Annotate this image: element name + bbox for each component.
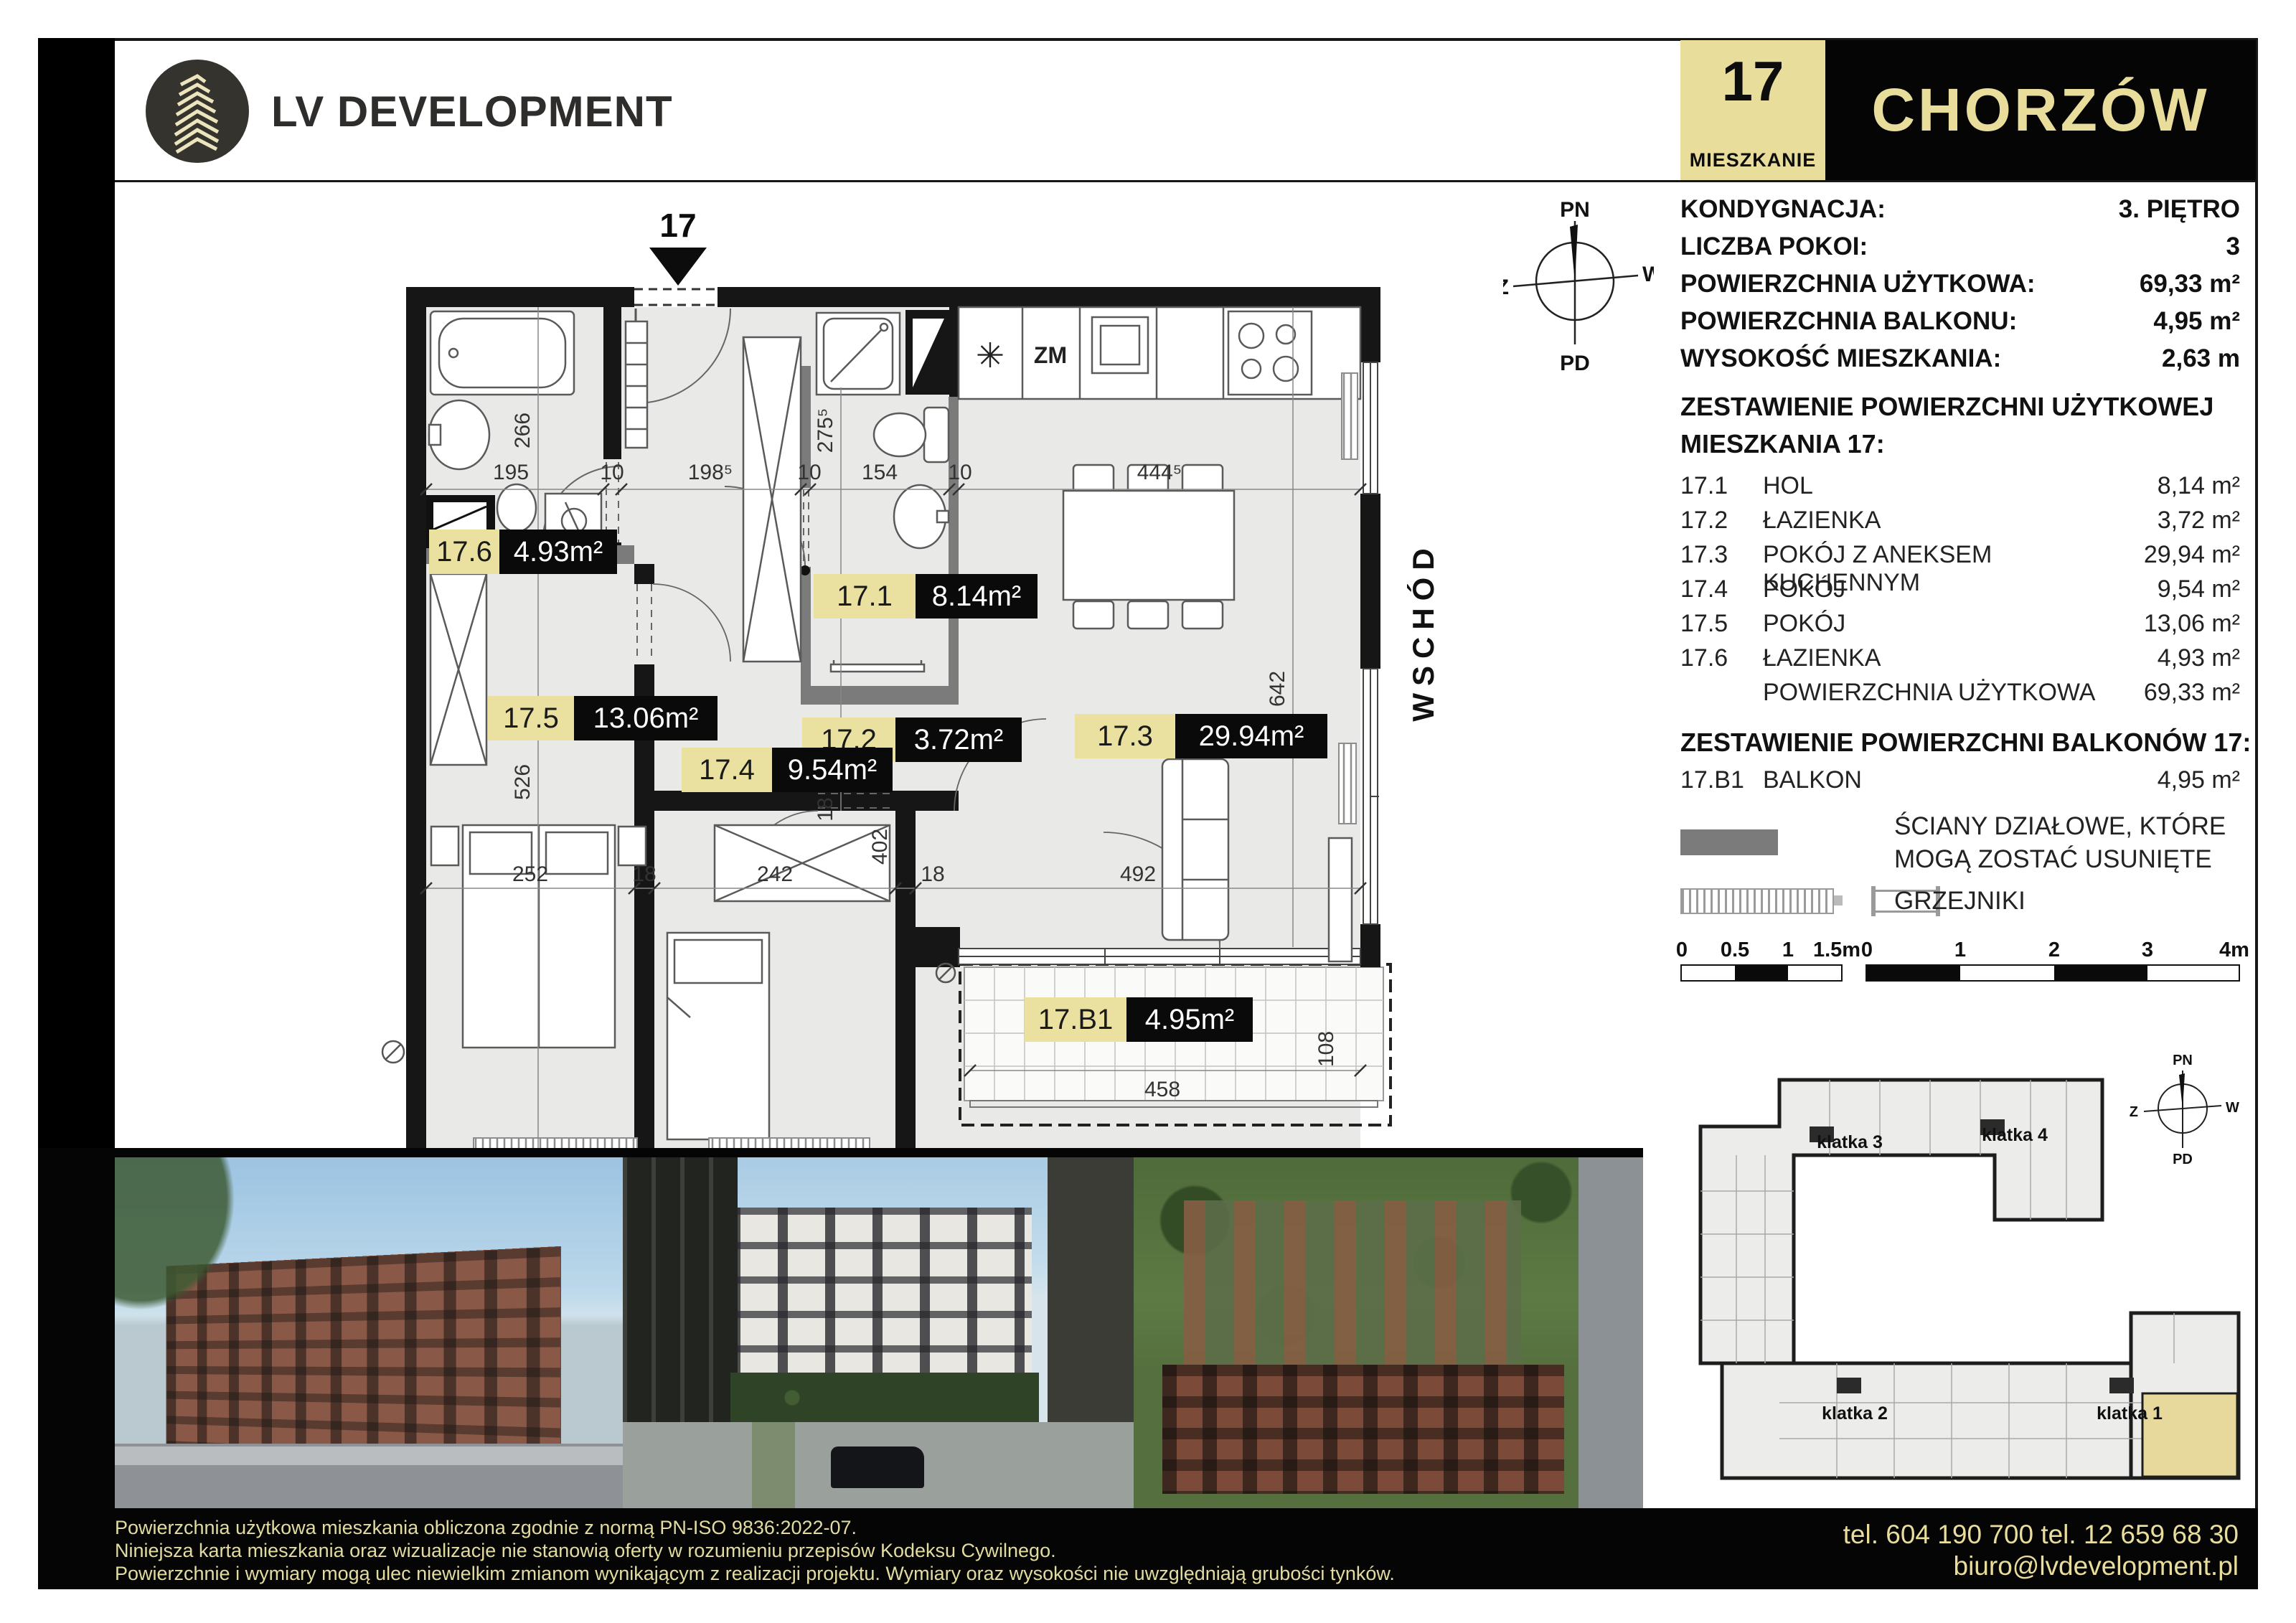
single-bed-icon bbox=[667, 933, 769, 1139]
svg-text:17.6: 17.6 bbox=[436, 536, 492, 568]
row-name: POKÓJ Z ANEKSEM KUCHENNYM bbox=[1763, 541, 2144, 573]
disclaimer-line-2: Niniejsza karta mieszkania oraz wizualiz… bbox=[115, 1540, 1478, 1562]
svg-text:195: 195 bbox=[493, 461, 529, 484]
row-id: 17.4 bbox=[1680, 575, 1763, 607]
row-value: 4,95 m² bbox=[2158, 766, 2240, 798]
row-value: 4,93 m² bbox=[2158, 644, 2240, 676]
scale-bar-small: 0 0.5 1 1.5m bbox=[1680, 964, 1843, 982]
contact-email: biuro@lvdevelopment.pl bbox=[1593, 1551, 2239, 1581]
areas-heading-1: ZESTAWIENIE POWIERZCHNI UŻYTKOWEJ bbox=[1680, 392, 2254, 422]
row-name: ŁAZIENKA bbox=[1763, 644, 2158, 676]
svg-text:17.3: 17.3 bbox=[1097, 720, 1153, 752]
city-box: CHORZÓW bbox=[1825, 40, 2256, 180]
scale-tick: 1.5m bbox=[1813, 938, 1860, 962]
svg-text:266: 266 bbox=[511, 413, 535, 448]
unit-caption: MIESZKANIE bbox=[1690, 149, 1817, 171]
svg-text:PD: PD bbox=[2173, 1152, 2193, 1167]
row-value: 3,72 m² bbox=[2158, 507, 2240, 538]
legend-radiators: GRZEJNIKI bbox=[1894, 887, 2253, 916]
table-row: 17.4 POKÓJ 9,54 m² bbox=[1680, 575, 2240, 607]
svg-text:458: 458 bbox=[1144, 1078, 1180, 1101]
svg-text:18: 18 bbox=[814, 797, 837, 821]
table-row-balcony: 17.B1 BALKON 4,95 m² bbox=[1680, 766, 2240, 798]
row-name: POWIERZCHNIA UŻYTKOWA bbox=[1763, 679, 2144, 710]
room-label-17-5: 17.5 13.06m² bbox=[488, 696, 717, 740]
photo-courtyard-view bbox=[623, 1157, 1134, 1508]
compass-south: PD bbox=[1560, 352, 1590, 375]
svg-text:444⁵: 444⁵ bbox=[1137, 461, 1182, 484]
brand: LV DEVELOPMENT bbox=[143, 50, 789, 172]
dishwasher-label: ZM bbox=[1034, 342, 1067, 368]
east-label: WSCHÓD bbox=[1406, 541, 1440, 721]
row-id: 17.5 bbox=[1680, 610, 1763, 641]
svg-text:18: 18 bbox=[632, 862, 656, 886]
info-row-floor: KONDYGNACJA: 3. PIĘTRO bbox=[1680, 195, 2240, 228]
table-row: 17.5 POKÓJ 13,06 m² bbox=[1680, 610, 2240, 641]
scale-tick: 1 bbox=[1782, 938, 1794, 962]
contact-phones: tel. 604 190 700 tel. 12 659 68 30 bbox=[1593, 1520, 2239, 1550]
svg-text:4.95m²: 4.95m² bbox=[1145, 1004, 1235, 1035]
info-row-balcony-area: POWIERZCHNIA BALKONU: 4,95 m² bbox=[1680, 307, 2240, 340]
info-row-rooms: LICZBA POKOI: 3 bbox=[1680, 232, 2240, 265]
scale-tick: 1 bbox=[1954, 938, 1966, 962]
svg-text:9.54m²: 9.54m² bbox=[788, 754, 878, 786]
room-label-17-1: 17.1 8.14m² bbox=[814, 574, 1038, 618]
svg-text:PN: PN bbox=[2173, 1053, 2193, 1068]
hob-icon bbox=[1228, 311, 1312, 395]
info-value: 69,33 m² bbox=[2140, 270, 2240, 303]
room-label-17-6: 17.6 4.93m² bbox=[429, 530, 617, 574]
site-plan: klatka 3 klatka 4 klatka 2 klatka 1 PN P… bbox=[1672, 1040, 2260, 1500]
scale-tick: 0.5 bbox=[1721, 938, 1749, 962]
info-row-height: WYSOKOŚĆ MIESZKANIA: 2,63 m bbox=[1680, 344, 2240, 377]
svg-text:29.94m²: 29.94m² bbox=[1199, 720, 1304, 752]
row-id: 17.3 bbox=[1680, 541, 1763, 573]
row-id: 17.2 bbox=[1680, 507, 1763, 538]
klatka-2-label: klatka 2 bbox=[1822, 1403, 1888, 1424]
row-name: POKÓJ bbox=[1763, 575, 2158, 607]
klatka-4-label: klatka 4 bbox=[1982, 1125, 2048, 1145]
row-value: 13,06 m² bbox=[2144, 610, 2240, 641]
svg-text:10: 10 bbox=[948, 461, 971, 484]
wardrobe-17-4-icon bbox=[715, 825, 890, 901]
entrance-number: 17 bbox=[659, 207, 696, 244]
row-name: HOL bbox=[1763, 472, 2158, 504]
svg-text:252: 252 bbox=[512, 862, 548, 886]
lv-development-logo-icon bbox=[143, 57, 251, 165]
svg-text:242: 242 bbox=[757, 862, 793, 886]
disclaimer-line-3: Powierzchnie i wymiary mogą ulec niewiel… bbox=[115, 1563, 1478, 1585]
info-label: LICZBA POKOI: bbox=[1680, 232, 1868, 265]
room-label-17-3: 17.3 29.94m² bbox=[1075, 714, 1327, 758]
svg-text:18: 18 bbox=[921, 862, 944, 886]
scale-tick: 0 bbox=[1861, 938, 1873, 962]
photo-aerial-view bbox=[1134, 1157, 1643, 1508]
scale-tick: 3 bbox=[2142, 938, 2153, 962]
svg-text:198⁵: 198⁵ bbox=[688, 461, 733, 484]
site-compass-icon: PN PD W Z bbox=[2130, 1053, 2239, 1167]
row-value: 8,14 m² bbox=[2158, 472, 2240, 504]
shower-icon bbox=[817, 313, 900, 395]
svg-text:526: 526 bbox=[511, 764, 535, 800]
row-name: POKÓJ bbox=[1763, 610, 2144, 641]
sofa-icon bbox=[1162, 759, 1228, 940]
row-id: 17.6 bbox=[1680, 644, 1763, 676]
wardrobe-17-5-icon bbox=[430, 574, 486, 765]
svg-text:10: 10 bbox=[797, 461, 821, 484]
coat-rack-icon bbox=[626, 321, 647, 448]
svg-text:275⁵: 275⁵ bbox=[814, 408, 837, 453]
svg-text:492: 492 bbox=[1120, 862, 1156, 886]
table-row-total: POWIERZCHNIA UŻYTKOWA 69,33 m² bbox=[1680, 679, 2240, 710]
legend-walls-2: MOGĄ ZOSTAĆ USUNIĘTE bbox=[1894, 845, 2253, 874]
scale-tick: 4m bbox=[2219, 938, 2249, 962]
row-id bbox=[1680, 679, 1763, 710]
room-label-balcony: 17.B1 4.95m² bbox=[1025, 997, 1253, 1042]
info-label: POWIERZCHNIA BALKONU: bbox=[1680, 307, 2017, 340]
row-value: 69,33 m² bbox=[2144, 679, 2240, 710]
svg-text:W: W bbox=[2226, 1100, 2239, 1116]
row-value: 9,54 m² bbox=[2158, 575, 2240, 607]
unit-number: 17 bbox=[1722, 53, 1784, 109]
info-value: 3 bbox=[2226, 232, 2240, 265]
info-value: 2,63 m bbox=[2162, 344, 2240, 377]
floor-plan: 17 bbox=[359, 201, 1507, 1234]
svg-text:17.4: 17.4 bbox=[699, 754, 755, 786]
hall-wardrobe-icon bbox=[743, 337, 801, 662]
city-name: CHORZÓW bbox=[1871, 75, 2209, 145]
svg-text:4.93m²: 4.93m² bbox=[514, 536, 603, 568]
svg-text:3.72m²: 3.72m² bbox=[914, 724, 1004, 756]
unit-number-box: 17 MIESZKANIE bbox=[1680, 40, 1825, 180]
info-label: POWIERZCHNIA UŻYTKOWA: bbox=[1680, 270, 2036, 303]
klatka-3-label: klatka 3 bbox=[1817, 1132, 1883, 1152]
svg-text:154: 154 bbox=[862, 461, 898, 484]
table-row: 17.6 ŁAZIENKA 4,93 m² bbox=[1680, 644, 2240, 676]
compass-north: PN bbox=[1560, 201, 1590, 222]
svg-text:13.06m²: 13.06m² bbox=[593, 702, 699, 734]
removable-wall-swatch bbox=[1680, 829, 1778, 855]
radiator-symbol-icon bbox=[1680, 888, 1834, 914]
legend-walls-1: ŚCIANY DZIAŁOWE, KTÓRE bbox=[1894, 812, 2253, 841]
scale-tick: 0 bbox=[1676, 938, 1688, 962]
balcony-heading: ZESTAWIENIE POWIERZCHNI BALKONÓW 17: bbox=[1680, 728, 2254, 758]
room-label-17-4: 17.4 9.54m² bbox=[682, 748, 893, 792]
info-label: KONDYGNACJA: bbox=[1680, 195, 1886, 228]
info-row-usable-area: POWIERZCHNIA UŻYTKOWA: 69,33 m² bbox=[1680, 270, 2240, 303]
svg-text:17.5: 17.5 bbox=[503, 702, 559, 734]
klatka-1-label: klatka 1 bbox=[2097, 1403, 2163, 1424]
svg-text:642: 642 bbox=[1266, 671, 1289, 707]
kitchen-sink-symbol: ✳ bbox=[976, 337, 1004, 375]
table-row: 17.3 POKÓJ Z ANEKSEM KUCHENNYM 29,94 m² bbox=[1680, 541, 2240, 573]
washbasin-icon bbox=[429, 400, 489, 469]
scale-tick: 2 bbox=[2048, 938, 2060, 962]
info-value: 4,95 m² bbox=[2153, 307, 2240, 340]
row-name: ŁAZIENKA bbox=[1763, 507, 2158, 538]
scale-bar-large: 0 1 2 3 4m bbox=[1865, 964, 2240, 982]
compass-east: W bbox=[1642, 263, 1654, 286]
svg-text:Z: Z bbox=[2130, 1104, 2138, 1120]
svg-text:108: 108 bbox=[1314, 1031, 1338, 1067]
svg-text:10: 10 bbox=[600, 461, 624, 484]
areas-heading-2: MIESZKANIA 17: bbox=[1680, 429, 2254, 459]
svg-text:17.B1: 17.B1 bbox=[1038, 1004, 1114, 1035]
header-divider bbox=[115, 180, 2258, 182]
table-row: 17.2 ŁAZIENKA 3,72 m² bbox=[1680, 507, 2240, 538]
table-row: 17.1 HOL 8,14 m² bbox=[1680, 472, 2240, 504]
row-value: 29,94 m² bbox=[2144, 541, 2240, 573]
tv-cabinet-icon bbox=[1329, 838, 1352, 961]
disclaimer-line-1: Powierzchnia użytkowa mieszkania obliczo… bbox=[115, 1517, 1478, 1539]
brand-name: LV DEVELOPMENT bbox=[271, 87, 673, 136]
row-id: 17.1 bbox=[1680, 472, 1763, 504]
oven-icon bbox=[1092, 317, 1148, 373]
svg-text:17.1: 17.1 bbox=[837, 580, 893, 612]
photo-street-view bbox=[115, 1157, 623, 1508]
row-name: BALKON bbox=[1763, 766, 2158, 798]
row-id: 17.B1 bbox=[1680, 766, 1763, 798]
compass-rose-icon: PN PD W Z bbox=[1503, 201, 1654, 387]
svg-text:402: 402 bbox=[868, 829, 892, 865]
info-value: 3. PIĘTRO bbox=[2119, 195, 2240, 228]
svg-text:8.14m²: 8.14m² bbox=[932, 580, 1022, 612]
bathtub-icon bbox=[430, 311, 574, 395]
info-label: WYSOKOŚĆ MIESZKANIA: bbox=[1680, 344, 2001, 377]
